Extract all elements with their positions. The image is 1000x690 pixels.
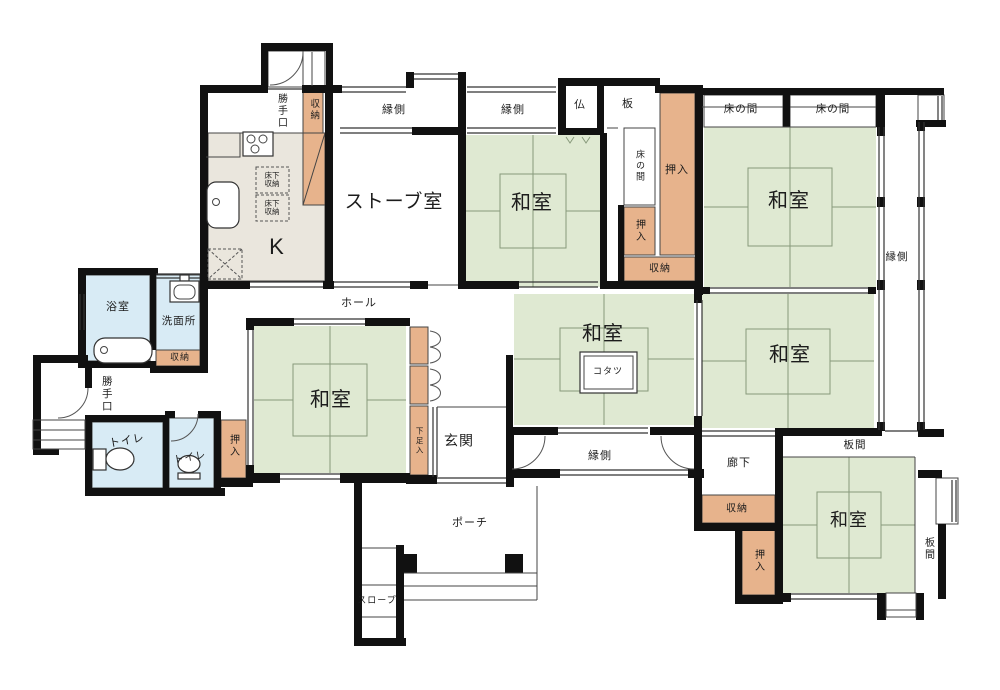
label-stove-room: ストーブ室 (345, 193, 444, 214)
toilet2-seat-icon (178, 473, 200, 479)
label-tokonoma-right-2: 床の間 (816, 104, 851, 116)
label-underfloor-storage-2: 床下収納 (263, 200, 281, 217)
label-engawa-top-2: 縁側 (501, 104, 525, 116)
label-washitsu-top-right: 和室 (768, 190, 810, 212)
label-washitsu-right-center: 和室 (769, 344, 811, 366)
label-engawa-right: 縁側 (886, 252, 909, 264)
label-washitsu-center: 和室 (582, 323, 624, 345)
label-underfloor-storage-1: 床下収納 (263, 172, 281, 189)
label-katteguchi-top: 勝手口 (276, 93, 287, 129)
label-hall: ホール (341, 297, 377, 309)
label-shuno-washroom: 収納 (170, 353, 190, 363)
label-oshiire-mid-small: 押入 (634, 219, 645, 243)
floor-plan: 勝手口 収納 縁側 縁側 仏 板 床の間 押入 押入 収納 床の間 床の間 和室… (0, 0, 1000, 690)
engawa-door-arc-left (512, 436, 545, 469)
label-bath: 浴室 (106, 301, 130, 313)
label-genkan: 玄関 (444, 433, 474, 448)
label-kotatsu: コタツ (593, 367, 623, 377)
stove-icon (243, 132, 273, 156)
label-butsu: 仏 (574, 99, 586, 111)
entry-side-storage (303, 51, 325, 87)
label-tokonoma-right-1: 床の間 (724, 104, 759, 116)
label-oshiire-mid-big: 押入 (665, 164, 689, 176)
label-washitsu-bottom-right: 和室 (830, 511, 868, 531)
porch-pillar-1 (400, 554, 417, 573)
label-washitsu-mid-top: 和室 (511, 192, 553, 214)
side-door-arc (58, 388, 88, 418)
label-washitsu-left: 和室 (310, 389, 352, 411)
washbasin-tap-icon (180, 275, 189, 281)
itama-bay-cabinet (936, 478, 958, 524)
label-oshiire-left: 押入 (228, 434, 239, 458)
bathtub-icon (94, 338, 152, 363)
label-porch: ポーチ (452, 517, 488, 529)
closet2-bifold-icon (430, 369, 441, 401)
label-shuno-top: 収納 (308, 99, 318, 122)
kitchen-sink-icon (207, 182, 239, 228)
engawa-door-arc-right (661, 436, 694, 469)
label-ita: 板 (622, 98, 634, 110)
label-oshiire-bottom-right: 押入 (753, 549, 764, 573)
porch-pillar-2 (505, 554, 523, 573)
label-roka: 廊下 (727, 457, 751, 469)
label-getabako: 下足入 (415, 427, 423, 456)
toilet1-bowl-icon (106, 448, 134, 470)
toilet1-tank-icon (93, 449, 106, 470)
engawa-corner-cabinet (918, 95, 944, 121)
label-washroom: 洗面所 (162, 316, 197, 328)
label-shuno-bottom-right: 収納 (726, 504, 748, 515)
label-tokonoma-mid: 床の間 (634, 150, 644, 183)
label-engawa-bottom: 縁側 (588, 450, 612, 462)
closet-hall-upper-2 (410, 366, 428, 404)
closet1-bifold-icon (430, 331, 441, 363)
label-engawa-top-1: 縁側 (382, 104, 406, 116)
label-itama-top: 板間 (844, 440, 867, 452)
label-slope: スロープ (357, 596, 396, 606)
label-itama-right: 板間 (923, 537, 934, 561)
closet-hall-upper-1 (410, 327, 428, 364)
label-shuno-mid: 収納 (649, 264, 671, 275)
label-kitchen: K (269, 235, 285, 259)
label-katteguchi-left: 勝手口 (100, 375, 112, 413)
